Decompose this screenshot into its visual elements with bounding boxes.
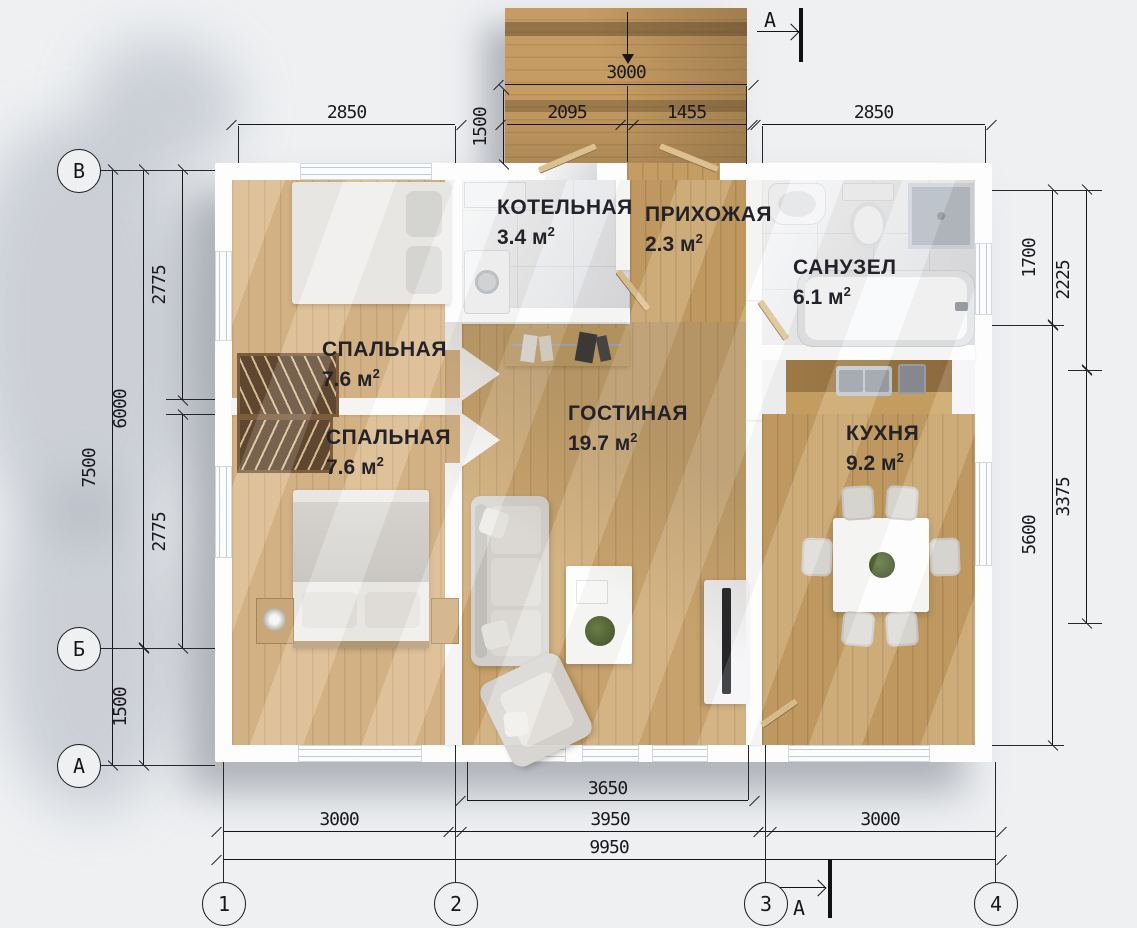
coffee-table (566, 566, 632, 664)
room-label-living: ГОСТИНАЯ 19.7 м2 (568, 402, 688, 456)
porch-shade (505, 8, 747, 166)
extension-line (99, 648, 215, 649)
section-marker-bar-bottom (828, 860, 832, 918)
window (298, 745, 422, 762)
kitchen-column-left (762, 360, 786, 414)
sink-basin (865, 370, 889, 392)
room-label-hallway: ПРИХОЖАЯ 2.3 м2 (645, 203, 772, 257)
axis-col-1: 1 (202, 882, 246, 926)
hanging-clothes-dark (596, 335, 612, 362)
axis-col-4: 4 (974, 882, 1018, 926)
dining-chair (841, 611, 876, 648)
dim-right-bath-outer: 2225 (1086, 190, 1087, 370)
nightstand-left (256, 598, 294, 644)
extension-line (746, 86, 747, 164)
pillow (302, 592, 357, 628)
bed-blanket (293, 502, 429, 582)
shower-drain (937, 212, 945, 220)
extension-line (455, 126, 456, 163)
extension-line (238, 126, 239, 163)
dim-top-left: 2850 (238, 124, 455, 125)
dim-top-right: 2850 (762, 124, 985, 125)
pillow (365, 592, 420, 628)
extension-line (995, 762, 996, 882)
wall-living-kitchen-upper (746, 362, 762, 420)
axis-col-3: 3 (744, 882, 788, 926)
kitchen-sink (836, 366, 892, 396)
section-arrow-head-top (783, 24, 800, 41)
room-area: 19.7 м2 (568, 430, 688, 456)
window (652, 745, 708, 762)
extension-line (455, 745, 456, 882)
room-label-boiler: КОТЕЛЬНАЯ 3.4 м2 (497, 196, 633, 250)
room-area: 3.4 м2 (497, 224, 633, 250)
room-name: ПРИХОЖАЯ (645, 203, 772, 227)
toilet-bowl (850, 202, 887, 248)
window (215, 466, 232, 558)
bed-double-bottom (293, 490, 429, 648)
extension-line (992, 745, 1064, 746)
dim-porch-seg-right: 1455 (627, 124, 746, 125)
dim-left-total: 7500 (112, 170, 113, 765)
pillow (503, 711, 529, 737)
room-area: 9.2 м2 (846, 450, 919, 476)
cooktop (898, 364, 926, 394)
window (300, 163, 432, 180)
section-label-bottom: А (793, 896, 805, 920)
hanging-clothes-light (520, 334, 538, 363)
plant-centerpiece (869, 552, 895, 578)
dim-right-bath: 1700 (1052, 190, 1053, 325)
dim-left-main: 6000 (143, 170, 144, 648)
table-lamp (263, 608, 286, 631)
dim-right-main: 5600 (1052, 325, 1053, 745)
extension-line (992, 190, 1102, 191)
extension-line (166, 414, 215, 415)
dim-porch-depth: 1500 (503, 90, 504, 164)
dim-bottom-left: 3000 (223, 831, 455, 832)
section-marker-bar-top (799, 8, 803, 62)
bed-footboard (293, 641, 429, 648)
door-threshold-bedroom-top (445, 350, 462, 398)
pillow (406, 191, 442, 237)
extension-line (1068, 623, 1102, 624)
washer-door (475, 270, 499, 294)
dim-porch-width: 3000 (505, 84, 747, 85)
armchair-seat (498, 670, 576, 749)
extension-line (99, 765, 215, 766)
room-name: КУХНЯ (846, 422, 919, 446)
dim-bottom-mid: 3950 (455, 831, 765, 832)
magazine (576, 580, 608, 604)
room-label-bedroom-bottom: СПАЛЬНАЯ 7.6 м2 (326, 426, 451, 480)
room-name: СПАЛЬНАЯ (326, 426, 451, 450)
bed-blanket (306, 182, 398, 304)
wardrobe-open-bottom (237, 417, 333, 473)
dining-chair (885, 611, 919, 647)
room-label-bedroom-top: СПАЛЬНАЯ 7.6 м2 (322, 338, 447, 392)
dim-bottom-right: 3000 (765, 831, 995, 832)
sink-basin (778, 191, 816, 217)
room-area: 7.6 м2 (322, 366, 447, 392)
nightstand-right (431, 598, 459, 644)
bathtub-faucet (955, 302, 968, 311)
extension-line (99, 170, 215, 171)
plant-pot (585, 616, 615, 646)
section-label-top: А (764, 8, 776, 32)
washing-machine (464, 250, 510, 314)
dim-porch-seg-left: 2095 (507, 124, 627, 125)
extension-line (166, 399, 215, 400)
dim-right-kitchen: 3375 (1086, 370, 1087, 623)
extension-line (765, 745, 766, 882)
toilet (842, 183, 894, 201)
tv-screen (722, 588, 731, 694)
kitchen-column-right (952, 360, 975, 414)
extension-line (992, 325, 1064, 326)
room-area: 2.3 м2 (645, 231, 772, 257)
room-area: 6.1 м2 (793, 284, 896, 310)
dim-left-room-top: 2775 (182, 170, 183, 400)
hanging-clothes-light (539, 335, 554, 361)
wall-living-kitchen-lower (746, 540, 762, 745)
room-name: СПАЛЬНАЯ (322, 338, 447, 362)
section-arrow-head-bottom (810, 880, 827, 897)
dim-bottom-total: 9950 (223, 859, 995, 860)
window (582, 745, 639, 762)
bed-double-top (292, 182, 450, 304)
window (975, 462, 992, 566)
extension-line (985, 126, 986, 163)
bathroom-sink (768, 183, 826, 225)
entry-arrow (627, 12, 628, 56)
room-label-kitchen: КУХНЯ 9.2 м2 (846, 422, 919, 476)
dining-chair (929, 537, 960, 576)
tv-console (704, 580, 748, 704)
axis-row-b: Б (57, 627, 101, 671)
extension-line (627, 86, 628, 162)
ambient-shadow (0, 120, 200, 540)
extension-line (748, 745, 749, 800)
extension-line (467, 762, 468, 800)
dining-chair (885, 485, 919, 521)
dim-left-lower: 1500 (143, 648, 144, 765)
floor-plan-canvas: КОТЕЛЬНАЯ 3.4 м2 ПРИХОЖАЯ 2.3 м2 САНУЗЕЛ… (0, 0, 1137, 928)
dim-bottom-windows: 3650 (467, 800, 748, 801)
axis-row-v: В (57, 149, 101, 193)
room-area: 7.6 м2 (326, 454, 451, 480)
dim-left-room-bottom: 2775 (182, 415, 183, 648)
shower-cabin (908, 183, 974, 249)
window (215, 251, 232, 341)
extension-line (762, 126, 763, 163)
hanging-clothes-dark (575, 332, 598, 364)
extension-line (223, 762, 224, 882)
room-name: КОТЕЛЬНАЯ (497, 196, 633, 220)
window (788, 745, 930, 762)
room-label-bathroom: САНУЗЕЛ 6.1 м2 (793, 256, 896, 310)
sofa (471, 496, 549, 666)
sink-basin (839, 370, 863, 392)
axis-col-2: 2 (434, 882, 478, 926)
window (975, 243, 992, 315)
extension-line (1068, 370, 1102, 371)
dining-chair (801, 537, 832, 576)
ambient-shadow (90, 40, 240, 170)
sofa-cushion (491, 558, 541, 606)
pillow (406, 246, 442, 294)
coat-rack (505, 328, 629, 366)
room-name: ГОСТИНАЯ (568, 402, 688, 426)
dining-table (833, 518, 929, 612)
axis-row-a: А (57, 744, 101, 788)
room-name: САНУЗЕЛ (793, 256, 896, 280)
dining-chair (841, 485, 875, 521)
kitchen-counter (762, 360, 975, 414)
